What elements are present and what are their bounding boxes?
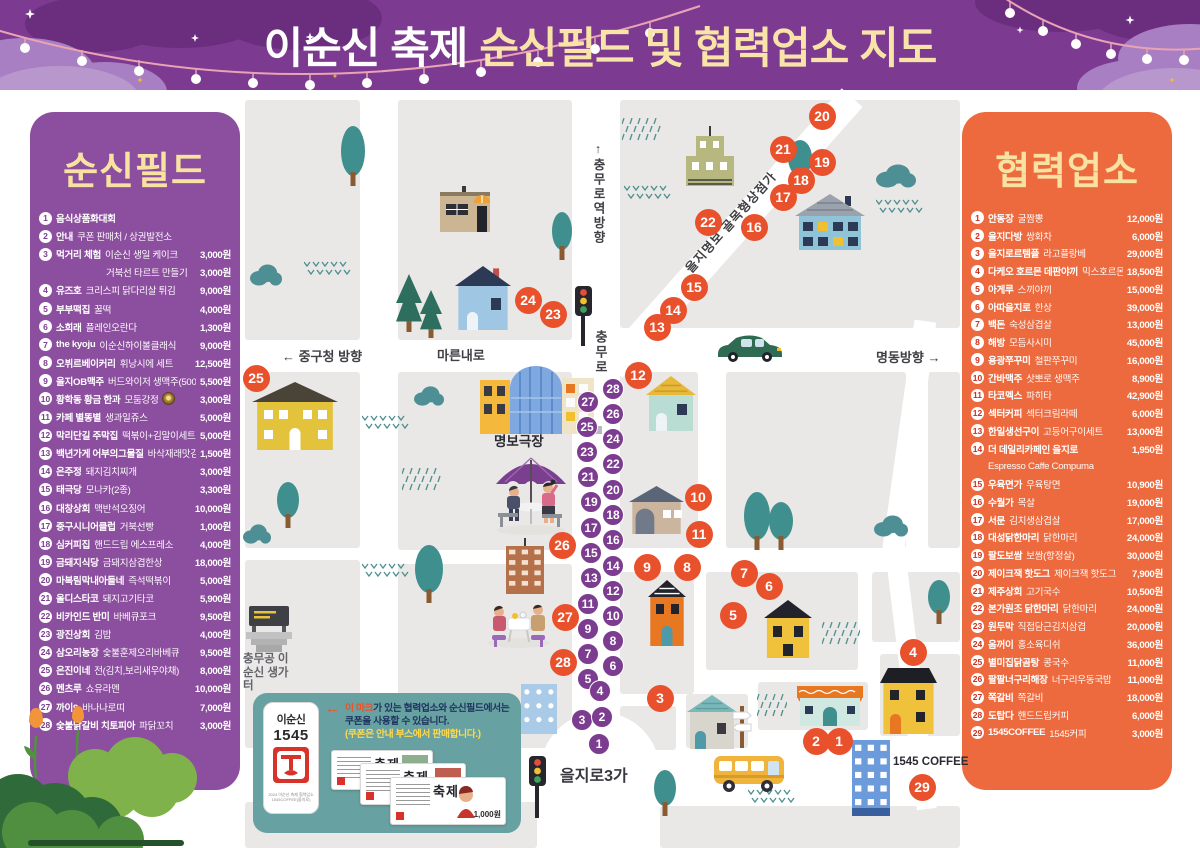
price: 6,000원 bbox=[1128, 406, 1163, 420]
menu-item: 섹터크림라떼 bbox=[1026, 406, 1077, 420]
price: 8,900원 bbox=[1128, 371, 1163, 385]
menu-item: 제이크잭 핫도그 bbox=[1054, 566, 1116, 580]
item-number: 18 bbox=[39, 537, 52, 550]
item-number: 10 bbox=[39, 392, 52, 405]
shop-name: 수월가 bbox=[988, 495, 1014, 509]
coupon-line-3: (쿠폰은 안내 부스에서 판매합니다.) bbox=[345, 728, 509, 741]
price: 24,000원 bbox=[1123, 601, 1163, 615]
item-number: 2 bbox=[971, 229, 984, 242]
shop-name: 대성닭한마리 bbox=[988, 530, 1039, 544]
partner-list-item: 12섹터커피섹터크림라떼6,000원 bbox=[962, 404, 1172, 422]
item-number: 9 bbox=[39, 374, 52, 387]
bus-icon bbox=[713, 750, 787, 794]
shop-name: 먹거리 체험 bbox=[56, 247, 101, 261]
field-list-item: 5부부떡집꿀떡4,000원 bbox=[30, 299, 240, 317]
shop-name: 간바맥주 bbox=[988, 371, 1022, 385]
menu-item: 버드와이저 생맥주(500cc) bbox=[108, 374, 196, 388]
route-marker-purple: 19 bbox=[580, 491, 602, 513]
map-marker-orange: 27 bbox=[552, 604, 579, 631]
item-number: 18 bbox=[971, 531, 984, 544]
field-list-item: 24삼오리농장숯불훈제오리바베큐9,500원 bbox=[30, 643, 240, 661]
menu-item: 닭한마리 bbox=[1043, 530, 1077, 544]
item-number: 3 bbox=[971, 247, 984, 260]
map-marker-orange: 7 bbox=[731, 560, 758, 587]
map-marker-orange: 13 bbox=[644, 314, 671, 341]
field-list-item: 11카페 별똥별생과일쥬스5,000원 bbox=[30, 408, 240, 426]
map-marker-orange: 4 bbox=[900, 639, 927, 666]
item-number: 1 bbox=[971, 211, 984, 224]
price: 9,000원 bbox=[196, 338, 231, 352]
left-arrow-icon: ← bbox=[325, 702, 340, 742]
item-number: 25 bbox=[971, 655, 984, 668]
price: 10,500원 bbox=[1123, 584, 1163, 598]
building-icon bbox=[521, 684, 557, 734]
map-marker-orange: 23 bbox=[540, 301, 567, 328]
tree-icon bbox=[769, 502, 793, 550]
shop-name: 서문 bbox=[988, 513, 1005, 527]
shop-name: 안동장 bbox=[988, 211, 1014, 225]
menu-item: 핸드드립커피 bbox=[1018, 708, 1069, 722]
shop-name: 도탑다 bbox=[988, 708, 1014, 722]
item-number: 24 bbox=[39, 646, 52, 659]
birthplace-monument bbox=[242, 604, 296, 654]
route-marker-purple: 8 bbox=[602, 630, 624, 652]
shop-name: 1545COFFEE bbox=[988, 727, 1045, 738]
page-title: 이순신 축제 순신필드 및 협력업소 지도 bbox=[0, 0, 1200, 90]
map-marker-orange: 8 bbox=[674, 554, 701, 581]
partner-list-item: 10간바맥주삿뽀로 생맥주8,900원 bbox=[962, 369, 1172, 387]
menu-item: 생과일쥬스 bbox=[105, 410, 148, 424]
field-list-item: 21올디스타코돼지고기타코5,900원 bbox=[30, 589, 240, 607]
shop-name: 삼오리농장 bbox=[56, 645, 99, 659]
field-list-item: 7the kyoju이순신하이볼클래식9,000원 bbox=[30, 336, 240, 354]
street-label-chungmuro: 충무로 bbox=[591, 330, 610, 375]
partner-list-item-continued: Espresso Caffe Compuma bbox=[962, 458, 1172, 476]
route-marker-purple: 28 bbox=[602, 378, 624, 400]
menu-item: 김밥 bbox=[94, 627, 111, 641]
shop-name: 제이크잭 핫도그 bbox=[988, 566, 1050, 580]
menu-item: 쿠폰 판매처 / 상권발전소 bbox=[77, 229, 172, 243]
menu-item: 쌍화차 bbox=[1026, 229, 1052, 243]
partner-list-item: 7백돈숙성삼겹살13,000원 bbox=[962, 316, 1172, 334]
house-icon bbox=[880, 668, 937, 734]
partner-list-item: 4다케오 호르몬 데판야끼믹스호르몬18,500원 bbox=[962, 262, 1172, 280]
menu-item: 굴짬뽕 bbox=[1018, 211, 1044, 225]
shop-name: 더 데일리카페인 을지로 bbox=[988, 442, 1078, 456]
price: 18,500원 bbox=[1123, 264, 1163, 278]
menu-item: 돼지고기타코 bbox=[103, 591, 154, 605]
item-number: 21 bbox=[971, 584, 984, 597]
field-list-item: 10황학동 황금 한과모둠강정3,000원 bbox=[30, 390, 240, 408]
street-label-junggu: ← 중구청 방향 bbox=[282, 346, 362, 365]
field-list: 1음식상품화대회2안내쿠폰 판매처 / 상권발전소3먹거리 체험이순신 생일 케… bbox=[30, 209, 240, 734]
house-icon bbox=[648, 580, 686, 646]
item-number: 12 bbox=[39, 429, 52, 442]
route-marker-purple: 15 bbox=[580, 542, 602, 564]
grass-texture bbox=[624, 184, 682, 202]
menu-item: 닭한마리 bbox=[1063, 601, 1097, 615]
grass-texture bbox=[362, 562, 412, 582]
item-number: 5 bbox=[39, 302, 52, 315]
shop-name: 팔도보쌈 bbox=[988, 548, 1022, 562]
house-icon bbox=[629, 486, 684, 534]
street-label-chungmuro-station: ↑충무로역방향 bbox=[589, 142, 608, 245]
menu-item: 돼지김치찌개 bbox=[86, 464, 137, 478]
menu-item: 이순신하이볼클래식 bbox=[99, 338, 176, 352]
price: 11,000원 bbox=[1123, 672, 1163, 686]
item-number: 3 bbox=[39, 248, 52, 261]
shop-name: 오뷔르베이커리 bbox=[56, 356, 116, 370]
shop-name: 금돼지식당 bbox=[56, 555, 99, 569]
coupon-line-1: 이 마크가 있는 협력업소와 순신필드에서는 bbox=[345, 702, 509, 715]
shop-name: 광진상회 bbox=[56, 627, 90, 641]
shop-name: 대창상회 bbox=[56, 501, 90, 515]
traffic-light-icon bbox=[525, 756, 549, 820]
route-marker-purple: 6 bbox=[602, 655, 624, 677]
menu-item: 모둠강정 bbox=[124, 392, 158, 406]
price: 5,000원 bbox=[196, 573, 231, 587]
menu-item: 휘낭시에 세트 bbox=[120, 356, 174, 370]
menu-item: 금돼지삼겹한상 bbox=[103, 555, 163, 569]
shop-icon bbox=[438, 186, 492, 234]
partner-list-item: 2을지다방쌍화차6,000원 bbox=[962, 227, 1172, 245]
menu-item: 이순신 생일 케이크 bbox=[105, 247, 178, 261]
route-marker-purple: 2 bbox=[591, 706, 613, 728]
coupon-instructions: ← 이 마크가 있는 협력업소와 순신필드에서는 쿠폰을 사용할 수 있습니다.… bbox=[325, 702, 509, 742]
bush-icon bbox=[414, 386, 444, 406]
item-number: 8 bbox=[39, 356, 52, 369]
item-number: 15 bbox=[39, 483, 52, 496]
field-list-item: 16대창상회맥반석오징어10,000원 bbox=[30, 499, 240, 517]
house-icon bbox=[646, 376, 696, 431]
shop-name: 타코멕스 bbox=[988, 388, 1022, 402]
item-number: 20 bbox=[39, 573, 52, 586]
menu-item: 떡볶이+김말이세트 bbox=[122, 428, 196, 442]
route-marker-purple: 4 bbox=[589, 680, 611, 702]
route-marker-purple: 23 bbox=[576, 441, 598, 463]
festival-map-poster: 이순신 축제 순신필드 및 협력업소 지도 순신필드 1음식상품화대회2안내쿠폰… bbox=[0, 0, 1200, 848]
field-list-item: 20마복림막내아들네즉석떡볶이5,000원 bbox=[30, 571, 240, 589]
menu-item: 1545커피 bbox=[1049, 726, 1086, 740]
price: 29,000원 bbox=[1123, 246, 1163, 260]
tree-icon bbox=[341, 126, 365, 186]
item-number: 11 bbox=[971, 389, 984, 402]
shop-name: 은주정 bbox=[56, 464, 82, 478]
route-marker-purple: 26 bbox=[602, 403, 624, 425]
shop-name: 섹터커피 bbox=[988, 406, 1022, 420]
field-list-item: 14은주정돼지김치찌개3,000원 bbox=[30, 462, 240, 480]
partner-list-item: 6아따을지로한상39,000원 bbox=[962, 298, 1172, 316]
label-euljiro-3ga: 을지로3가 bbox=[560, 762, 628, 786]
festival-logo-card: 이순신 1545 2024 이순신 축제 협력업소1545COFFEE(을지로) bbox=[263, 702, 319, 814]
menu-item: 콩국수 bbox=[1043, 655, 1069, 669]
shop-name: 아따을지로 bbox=[988, 300, 1031, 314]
map-marker-orange: 17 bbox=[770, 184, 797, 211]
menu-item: 숯불훈제오리바베큐 bbox=[103, 645, 180, 659]
menu-item: 바삭재래맛김 bbox=[148, 446, 196, 460]
item-number: 27 bbox=[971, 691, 984, 704]
menu-item: 쪽갈비 bbox=[1018, 690, 1044, 704]
price: 9,500원 bbox=[196, 609, 231, 623]
menu-item: 즉석떡볶이 bbox=[128, 573, 171, 587]
menu-item: 한상 bbox=[1035, 300, 1052, 314]
map-marker-orange: 12 bbox=[625, 362, 652, 389]
price: 4,000원 bbox=[196, 537, 231, 551]
shop-name: 본가원조 닭한마리 bbox=[988, 601, 1059, 615]
field-list-item: 13백년가게 어부의그물질바삭재래맛김1,500원 bbox=[30, 444, 240, 462]
partner-list-item: 14더 데일리카페인 을지로1,950원 bbox=[962, 440, 1172, 458]
shop-name: 해방 bbox=[988, 335, 1005, 349]
map-marker-orange: 9 bbox=[634, 554, 661, 581]
price: 12,500원 bbox=[191, 356, 231, 370]
city-block bbox=[928, 372, 960, 548]
logo-number: 1545 bbox=[264, 727, 318, 744]
price: 45,000원 bbox=[1123, 335, 1163, 349]
price: 10,000원 bbox=[191, 501, 231, 515]
shop-name: 별미집닭곰탕 bbox=[988, 655, 1039, 669]
festival-seal-icon bbox=[272, 746, 310, 784]
field-list-item: 25은진이네전(김치,보리새우야채)8,000원 bbox=[30, 661, 240, 679]
partner-list-item: 15우육면가우육탕면10,900원 bbox=[962, 475, 1172, 493]
item-number: 17 bbox=[971, 513, 984, 526]
price: 1,000원 bbox=[196, 519, 231, 533]
field-list-item: 23광진상회김밥4,000원 bbox=[30, 625, 240, 643]
street-label-mareunnae: 마른내로 bbox=[437, 345, 485, 364]
price: 30,000원 bbox=[1123, 548, 1163, 562]
shop-name: 안내 bbox=[56, 229, 73, 243]
pine-tree-icon bbox=[420, 290, 442, 338]
price: 7,900원 bbox=[1128, 566, 1163, 580]
route-marker-purple: 25 bbox=[576, 416, 598, 438]
partner-list-item: 28도탑다핸드드립커피6,000원 bbox=[962, 706, 1172, 724]
grass-texture bbox=[622, 118, 668, 146]
car-icon bbox=[715, 332, 785, 362]
shop-name: 용광쭈꾸미 bbox=[988, 353, 1031, 367]
map-marker-orange: 6 bbox=[756, 573, 783, 600]
field-list-item: 15태극당모나카(2종)3,300원 bbox=[30, 480, 240, 498]
partner-list-item: 21제주상회고기국수10,500원 bbox=[962, 582, 1172, 600]
route-marker-purple: 14 bbox=[602, 555, 624, 577]
building-icon bbox=[506, 538, 544, 594]
shop-name: 막리단길 주막집 bbox=[56, 428, 118, 442]
item-number: 25 bbox=[39, 664, 52, 677]
map-marker-orange: 1 bbox=[826, 728, 853, 755]
coupon-ticket: 축제 1,000원 bbox=[390, 777, 506, 825]
shop-name: 유즈호 bbox=[56, 283, 82, 297]
price: 4,000원 bbox=[196, 627, 231, 641]
route-marker-purple: 21 bbox=[577, 466, 599, 488]
grass-texture bbox=[822, 622, 860, 650]
partner-list-item: 8해방모듬사시미45,000원 bbox=[962, 333, 1172, 351]
menu-item: 모듬사시미 bbox=[1009, 335, 1052, 349]
partner-list-item: 23원두막직접담근김치삼겹20,000원 bbox=[962, 617, 1172, 635]
route-marker-purple: 13 bbox=[580, 567, 602, 589]
grass-texture bbox=[876, 198, 934, 216]
menu-item: 파히타 bbox=[1026, 388, 1052, 402]
map-marker-orange: 29 bbox=[909, 774, 936, 801]
grass-texture bbox=[757, 694, 787, 720]
item-number: 21 bbox=[39, 592, 52, 605]
item-number: 23 bbox=[971, 620, 984, 633]
item-number: 4 bbox=[971, 265, 984, 278]
item-number: 5 bbox=[971, 282, 984, 295]
map-marker-orange: 15 bbox=[681, 274, 708, 301]
menu-item: 꿀떡 bbox=[94, 302, 111, 316]
item-number: 13 bbox=[39, 447, 52, 460]
field-list-item: 2안내쿠폰 판매처 / 상권발전소 bbox=[30, 227, 240, 245]
partner-list-item: 24옴꺼이홍소육디쉬36,000원 bbox=[962, 635, 1172, 653]
price: 3,000원 bbox=[196, 392, 231, 406]
map-marker-orange: 24 bbox=[515, 287, 542, 314]
partner-list-item: 22본가원조 닭한마리닭한마리24,000원 bbox=[962, 600, 1172, 618]
item-number: 29 bbox=[971, 726, 984, 739]
grass-texture bbox=[304, 260, 354, 278]
coupon-info-box: 이순신 1545 2024 이순신 축제 협력업소1545COFFEE(을지로)… bbox=[253, 693, 521, 833]
item-number: 24 bbox=[971, 637, 984, 650]
tree-icon bbox=[415, 545, 443, 603]
shop-name: 우육면가 bbox=[988, 477, 1022, 491]
shop-name: 음식상품화대회 bbox=[56, 211, 116, 225]
partner-list-item: 26팔팔너구리해장너구리우동국밥11,000원 bbox=[962, 671, 1172, 689]
map-marker-orange: 20 bbox=[809, 103, 836, 130]
bush-icon bbox=[250, 264, 282, 286]
building-icon bbox=[686, 126, 734, 190]
price: 9,500원 bbox=[196, 645, 231, 659]
logo-caption: 2024 이순신 축제 협력업소1545COFFEE(을지로) bbox=[264, 792, 318, 802]
price: 18,000원 bbox=[1123, 690, 1163, 704]
item-number: 13 bbox=[971, 424, 984, 437]
shop-name: 팔팔너구리해장 bbox=[988, 672, 1048, 686]
price: 24,000원 bbox=[1123, 530, 1163, 544]
field-list-item: 12막리단길 주막집떡볶이+김말이세트5,000원 bbox=[30, 426, 240, 444]
price: 5,000원 bbox=[196, 428, 231, 442]
partner-list-item: 20제이크잭 핫도그제이크잭 핫도그7,900원 bbox=[962, 564, 1172, 582]
bush-icon bbox=[876, 164, 916, 188]
house-icon bbox=[764, 600, 812, 658]
shop-name: 백년가게 어부의그물질 bbox=[56, 446, 144, 460]
bush-icon bbox=[874, 515, 908, 537]
shop-name: the kyoju bbox=[56, 339, 95, 350]
price: 16,000원 bbox=[1123, 353, 1163, 367]
house-icon bbox=[252, 382, 338, 450]
price: 11,000원 bbox=[1123, 655, 1163, 669]
street-dining-scene bbox=[484, 600, 554, 648]
menu-item: 스끼야끼 bbox=[1018, 282, 1052, 296]
shop-name: 제주상회 bbox=[988, 584, 1022, 598]
partner-shops-panel: 협력업소 1안동장굴짬뽕12,000원2을지다방쌍화차6,000원3을지로르템플… bbox=[962, 112, 1172, 790]
pine-tree-icon bbox=[396, 274, 422, 332]
map-marker-orange: 11 bbox=[686, 521, 713, 548]
shop-name: 태극당 bbox=[56, 482, 82, 496]
shop-name: 백돈 bbox=[988, 317, 1005, 331]
map-marker-orange: 3 bbox=[647, 685, 674, 712]
menu-item: 크리스피 닭다리살 튀김 bbox=[86, 283, 176, 297]
map-marker-orange: 5 bbox=[720, 602, 747, 629]
price: 1,950원 bbox=[1128, 442, 1163, 456]
shop-name: 비카인드 반미 bbox=[56, 609, 110, 623]
shop-name: 중구시니어클럽 bbox=[56, 519, 116, 533]
menu-item: 숙성삼겹살 bbox=[1009, 317, 1052, 331]
item-number: 19 bbox=[39, 555, 52, 568]
price: 18,000원 bbox=[191, 555, 231, 569]
item-number: 17 bbox=[39, 519, 52, 532]
shop-name: 한일생선구이 bbox=[988, 424, 1039, 438]
price: 10,900원 bbox=[1123, 477, 1163, 491]
header-banner: 이순신 축제 순신필드 및 협력업소 지도 bbox=[0, 0, 1200, 90]
item-number: 22 bbox=[971, 602, 984, 615]
item-number: 23 bbox=[39, 628, 52, 641]
menu-item: 직접담근김치삼겹 bbox=[1018, 619, 1086, 633]
item-number: 10 bbox=[971, 371, 984, 384]
price: 3,000원 bbox=[196, 464, 231, 478]
shop-name: 을지OB맥주 bbox=[56, 374, 104, 388]
menu-item: 너구리우동국밥 bbox=[1052, 672, 1112, 686]
route-marker-purple: 27 bbox=[577, 391, 599, 413]
shop-name: 다케오 호르몬 데판야끼 bbox=[988, 264, 1078, 278]
corner-greenery bbox=[0, 688, 250, 848]
tree-icon bbox=[277, 482, 299, 528]
map-marker-orange: 19 bbox=[809, 149, 836, 176]
price: 5,900원 bbox=[196, 591, 231, 605]
partner-list-item: 291545COFFEE1545커피3,000원 bbox=[962, 724, 1172, 742]
price: 1,300원 bbox=[196, 320, 231, 334]
partner-list-item: 1안동장굴짬뽕12,000원 bbox=[962, 209, 1172, 227]
house-icon bbox=[795, 194, 865, 250]
map-marker-orange: 26 bbox=[549, 532, 576, 559]
house-icon bbox=[455, 266, 511, 330]
street-label-myeongdong: 명동방향 → bbox=[876, 347, 940, 366]
item-number: 22 bbox=[39, 610, 52, 623]
shop-icon bbox=[797, 680, 863, 730]
shop-name: 원두막 bbox=[988, 619, 1014, 633]
price: 39,000원 bbox=[1123, 300, 1163, 314]
ticket-price: 1,000원 bbox=[474, 809, 501, 820]
menu-item: 믹스호르몬 bbox=[1082, 264, 1123, 278]
menu-item: 라고플랑베 bbox=[1043, 246, 1086, 260]
partner-list-item: 16수월가목살19,000원 bbox=[962, 493, 1172, 511]
tree-icon bbox=[552, 212, 572, 260]
partner-list: 1안동장굴짬뽕12,000원2을지다방쌍화차6,000원3을지로르템플라고플랑베… bbox=[962, 209, 1172, 742]
route-marker-purple: 18 bbox=[602, 504, 624, 526]
item-number: 16 bbox=[971, 495, 984, 508]
building-icon bbox=[852, 740, 890, 816]
map-marker-orange: 10 bbox=[685, 484, 712, 511]
menu-item: 김치생삼겹살 bbox=[1009, 513, 1060, 527]
shop-name: 옴꺼이 bbox=[988, 637, 1014, 651]
shop-name: 쪽갈비 bbox=[988, 690, 1014, 704]
coupon-line-2: 쿠폰을 사용할 수 있습니다. bbox=[345, 715, 509, 728]
map-marker-orange: 25 bbox=[243, 365, 270, 392]
route-marker-purple: 11 bbox=[577, 593, 599, 615]
label-1545-coffee: 1545 COFFEE bbox=[893, 756, 968, 768]
price: 3,000원 bbox=[196, 247, 231, 261]
item-number: 20 bbox=[971, 566, 984, 579]
price: 3,000원 bbox=[196, 265, 231, 279]
price: 6,000원 bbox=[1128, 708, 1163, 722]
route-marker-purple: 12 bbox=[602, 580, 624, 602]
item-number: 7 bbox=[971, 318, 984, 331]
menu-item: 보쌈(항정살) bbox=[1026, 548, 1074, 562]
bush-icon bbox=[243, 524, 271, 544]
grass-texture bbox=[402, 468, 448, 496]
route-marker-purple: 24 bbox=[602, 428, 624, 450]
tree-icon bbox=[928, 580, 950, 624]
menu-item: 삿뽀로 생맥주 bbox=[1026, 371, 1080, 385]
menu-item: 거북선 타르트 만들기 bbox=[106, 265, 187, 279]
field-list-item: 1음식상품화대회 bbox=[30, 209, 240, 227]
menu-item: Espresso Caffe Compuma bbox=[988, 461, 1094, 472]
item-number: 26 bbox=[971, 673, 984, 686]
